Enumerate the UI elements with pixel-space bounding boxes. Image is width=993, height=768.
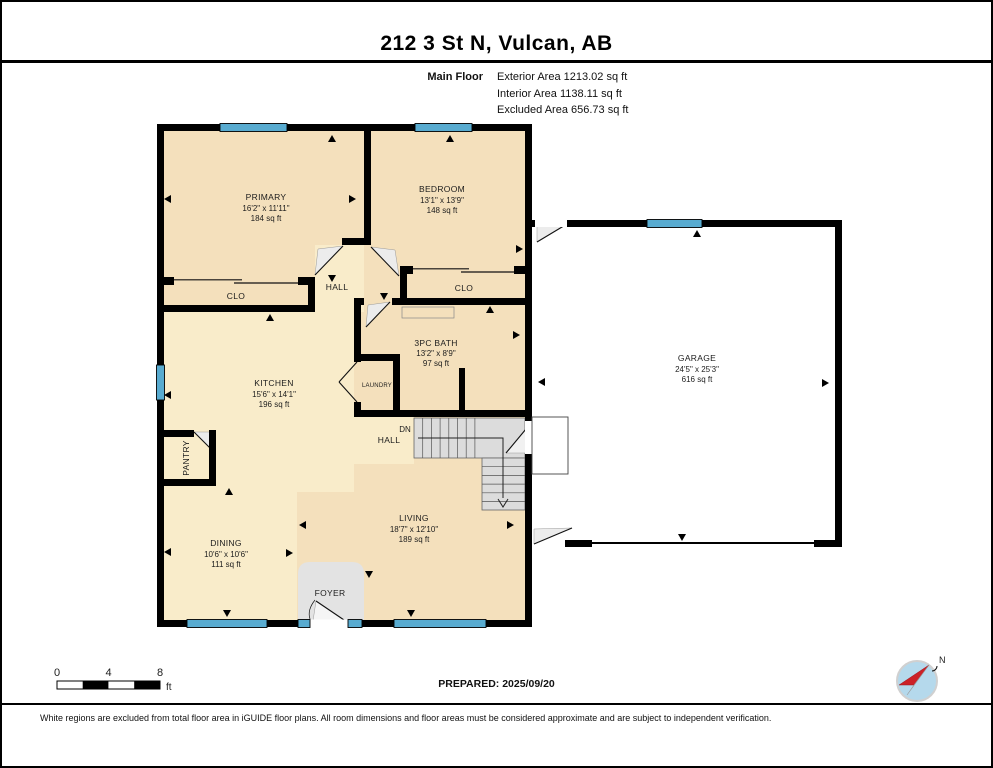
svg-text:PRIMARY: PRIMARY (246, 192, 287, 202)
primary-window (220, 124, 287, 132)
disclaimer-text: White regions are excluded from total fl… (40, 713, 771, 723)
svg-text:GARAGE: GARAGE (678, 353, 716, 363)
kitchen-window (157, 365, 165, 400)
closet-bedroom-label: CLO (455, 283, 473, 293)
direction-marker-icon (538, 378, 545, 386)
hall-lower-label: HALL (378, 435, 400, 445)
floorplan-drawing: PRIMARY 16'2" x 11'11" 184 sq ft BEDROOM… (2, 2, 993, 768)
svg-text:LIVING: LIVING (399, 513, 429, 523)
laundry-label: LAUNDRY (362, 383, 392, 389)
garage-landing (532, 417, 568, 474)
living-window (394, 620, 486, 628)
foyer-label: FOYER (315, 588, 346, 598)
foyer-sidelight-left (298, 620, 310, 628)
closet-primary-label: CLO (227, 291, 245, 301)
svg-text:DINING: DINING (210, 538, 242, 548)
prepared-date: PREPARED: 2025/09/20 (2, 678, 991, 690)
direction-marker-icon (822, 379, 829, 387)
footer-divider (2, 703, 991, 705)
garage-door-line (592, 542, 814, 544)
direction-marker-icon (678, 534, 686, 541)
foyer-sidelight-right (348, 620, 362, 628)
svg-text:16'2" x 11'11": 16'2" x 11'11" (242, 204, 289, 213)
dn-label: DN (399, 425, 411, 434)
svg-text:24'5" x 25'3": 24'5" x 25'3" (675, 365, 719, 374)
svg-text:15'6" x 14'1": 15'6" x 14'1" (252, 390, 296, 399)
svg-text:148 sq ft: 148 sq ft (427, 206, 458, 215)
svg-text:184 sq ft: 184 sq ft (251, 214, 282, 223)
svg-text:KITCHEN: KITCHEN (254, 378, 293, 388)
svg-text:BEDROOM: BEDROOM (419, 184, 465, 194)
room-label-garage: GARAGE 24'5" x 25'3" 616 sq ft (675, 353, 719, 384)
svg-text:3PC BATH: 3PC BATH (414, 338, 457, 348)
svg-text:13'2" x 8'9": 13'2" x 8'9" (416, 349, 456, 358)
svg-text:196 sq ft: 196 sq ft (259, 400, 290, 409)
compass-icon: N (884, 650, 954, 710)
compass-north-label: N (939, 655, 946, 665)
pantry-label: PANTRY (181, 440, 191, 476)
svg-text:111 sq ft: 111 sq ft (211, 560, 241, 569)
svg-text:18'7" x 12'10": 18'7" x 12'10" (390, 525, 438, 534)
garage-window (647, 220, 702, 228)
svg-text:10'6" x 10'6": 10'6" x 10'6" (204, 550, 248, 559)
dining-window (187, 620, 267, 628)
svg-text:189 sq ft: 189 sq ft (399, 535, 430, 544)
svg-text:616 sq ft: 616 sq ft (682, 375, 713, 384)
bedroom-window (415, 124, 472, 132)
svg-text:97 sq ft: 97 sq ft (423, 359, 450, 368)
floorplan-page: 212 3 St N, Vulcan, AB Main Floor Exteri… (0, 0, 993, 768)
hall-upper-label: HALL (326, 282, 348, 292)
svg-text:13'1" x 13'9": 13'1" x 13'9" (420, 196, 464, 205)
direction-marker-icon (693, 230, 701, 237)
